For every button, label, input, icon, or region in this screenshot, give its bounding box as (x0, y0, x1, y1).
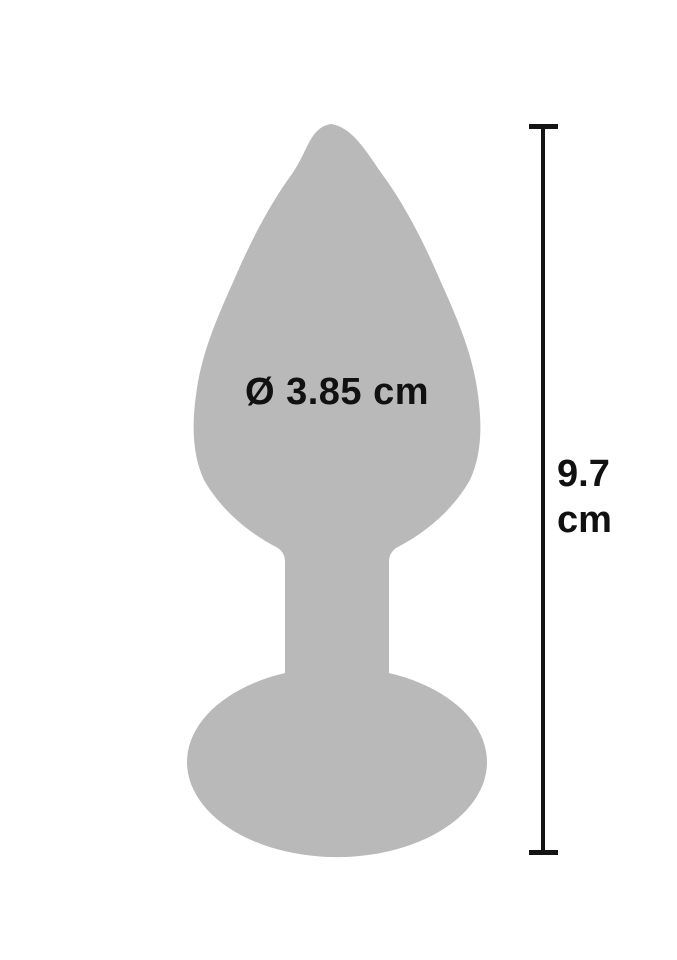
height-unit: cm (557, 497, 612, 543)
plug-shape-outline (187, 124, 487, 857)
height-label: 9.7 cm (557, 451, 612, 543)
dimension-diagram: Ø 3.85 cm 9.7 cm (0, 0, 677, 960)
measure-bottom-cap (529, 850, 558, 855)
measure-vertical-bar (541, 125, 545, 855)
diameter-label: Ø 3.85 cm (245, 372, 429, 412)
height-value: 9.7 (557, 451, 612, 497)
